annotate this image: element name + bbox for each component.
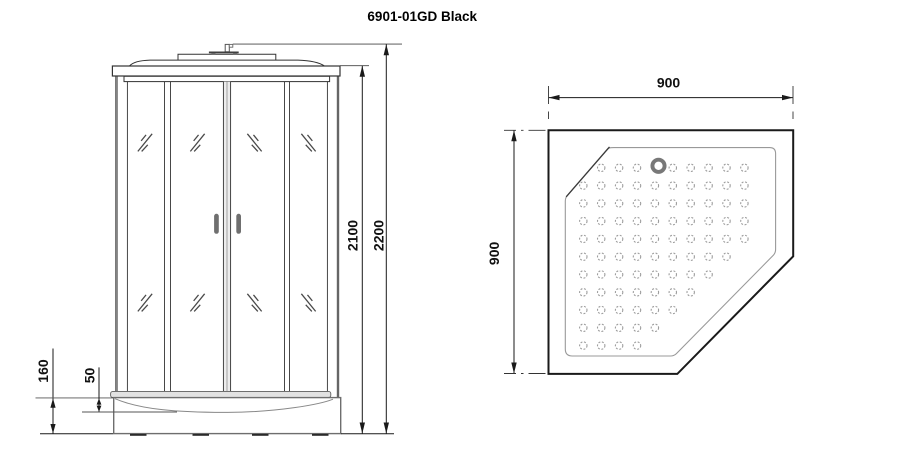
svg-text:2200: 2200 — [371, 220, 387, 251]
svg-text:50: 50 — [82, 368, 98, 384]
svg-text:2100: 2100 — [345, 220, 361, 251]
svg-text:900: 900 — [486, 242, 502, 266]
svg-text:160: 160 — [35, 359, 51, 383]
svg-text:900: 900 — [657, 75, 681, 91]
